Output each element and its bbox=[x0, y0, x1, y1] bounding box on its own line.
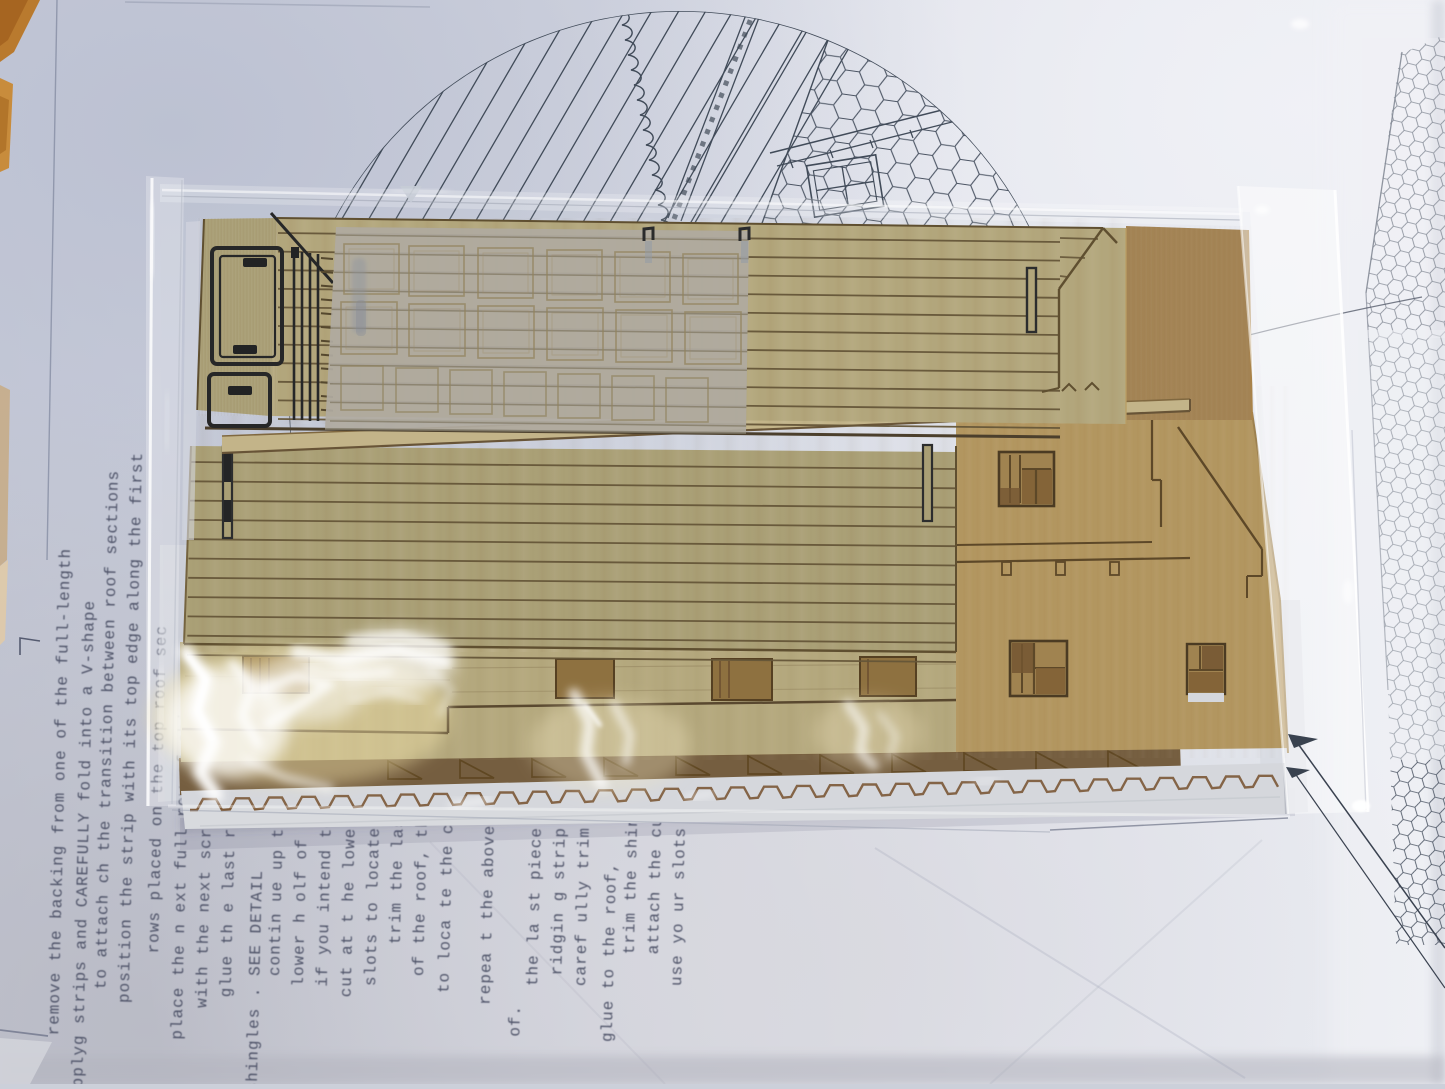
svg-text:of.: of. bbox=[506, 1005, 525, 1037]
